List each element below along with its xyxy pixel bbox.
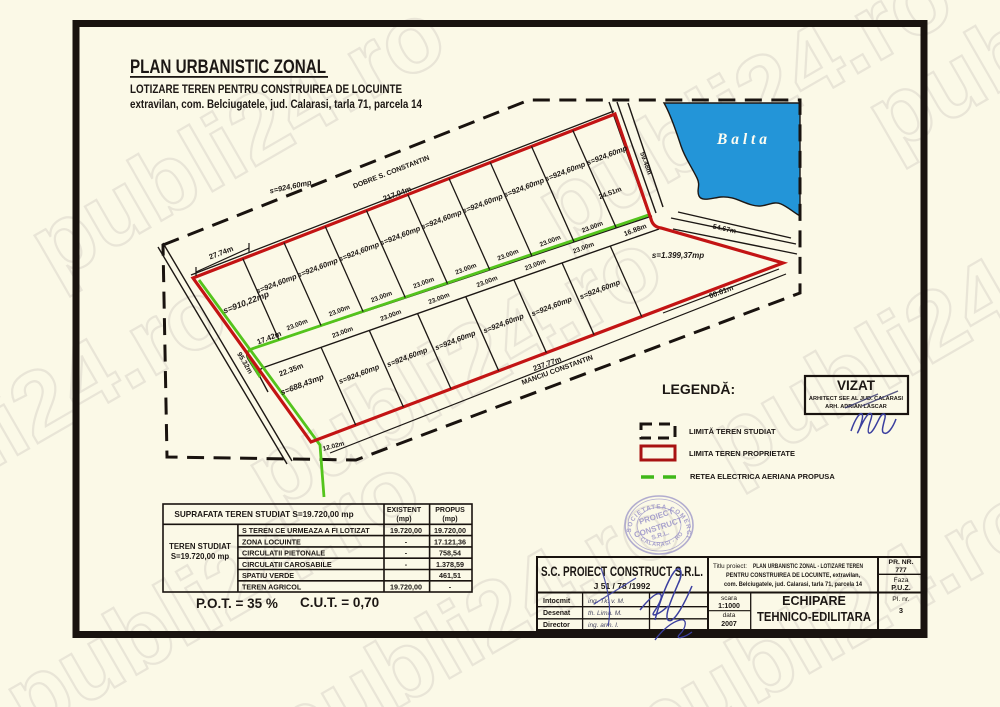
- svg-text:S=19.720,00 mp: S=19.720,00 mp: [171, 552, 230, 561]
- svg-text:(mp): (mp): [442, 516, 457, 523]
- svg-text:CIRCULATII CAROSABILE: CIRCULATII CAROSABILE: [242, 560, 332, 569]
- svg-text:3: 3: [899, 606, 903, 615]
- svg-text:19.720,00: 19.720,00: [390, 583, 422, 592]
- svg-text:EXISTENT: EXISTENT: [387, 507, 422, 514]
- svg-text:CIRCULATII PIETONALE: CIRCULATII PIETONALE: [242, 549, 325, 558]
- svg-text:758,54: 758,54: [439, 549, 461, 558]
- svg-text:VIZAT: VIZAT: [837, 378, 876, 393]
- svg-text:P.O.T. = 35 %: P.O.T. = 35 %: [196, 596, 278, 611]
- svg-text:PLAN URBANISTIC ZONAL: PLAN URBANISTIC ZONAL: [130, 56, 326, 78]
- svg-text:PLAN URBANISTIC ZONAL - LOTIZA: PLAN URBANISTIC ZONAL - LOTIZARE TEREN: [753, 563, 863, 570]
- svg-text:461,51: 461,51: [439, 571, 461, 580]
- svg-text:Director: Director: [543, 622, 570, 629]
- svg-text:S.C. PROIECT CONSTRUCT S.R.L.: S.C. PROIECT CONSTRUCT S.R.L.: [541, 564, 703, 579]
- svg-text:Titlu proiect:: Titlu proiect:: [713, 563, 747, 570]
- svg-text:LIMITĂ TEREN STUDIAT: LIMITĂ TEREN STUDIAT: [689, 427, 776, 436]
- svg-text:B a l t a: B a l t a: [716, 131, 767, 148]
- svg-text:ARH. ADRIAN LASCAR: ARH. ADRIAN LASCAR: [825, 404, 887, 410]
- svg-text:Intocmit: Intocmit: [543, 598, 571, 605]
- svg-text:ECHIPARE: ECHIPARE: [782, 594, 846, 608]
- svg-text:extravilan, com. Belciugatele,: extravilan, com. Belciugatele, jud. Cala…: [130, 97, 422, 111]
- svg-text:ARHITECT SEF AL JUD. CALARASI: ARHITECT SEF AL JUD. CALARASI: [809, 396, 904, 402]
- svg-text:17.121,36: 17.121,36: [434, 537, 466, 546]
- svg-text:1:1000: 1:1000: [718, 603, 740, 610]
- svg-text:PR. NR.: PR. NR.: [889, 559, 914, 566]
- svg-text:PROPUS: PROPUS: [435, 507, 465, 514]
- svg-text:C.U.T. = 0,70: C.U.T. = 0,70: [300, 595, 379, 610]
- svg-text:TEHNICO-EDILITARA: TEHNICO-EDILITARA: [757, 610, 871, 624]
- svg-text:P.U.Z.: P.U.Z.: [891, 583, 910, 592]
- svg-text:TEREN AGRICOL: TEREN AGRICOL: [242, 583, 302, 592]
- svg-text:RETEA ELECTRICA AERIANA PROPUS: RETEA ELECTRICA AERIANA PROPUSA: [690, 472, 835, 481]
- svg-text:LIMITA TEREN PROPRIETATE: LIMITA TEREN PROPRIETATE: [689, 449, 795, 458]
- svg-text:com. Belciugatele, jud. Calara: com. Belciugatele, jud. Calarasi, tarla …: [724, 582, 863, 588]
- svg-text:SPATIU VERDE: SPATIU VERDE: [242, 571, 294, 580]
- svg-text:19.720,00: 19.720,00: [390, 526, 422, 535]
- svg-text:s=1.399,37mp: s=1.399,37mp: [652, 251, 704, 260]
- svg-text:data: data: [723, 612, 736, 619]
- svg-text:S TEREN CE URMEAZA A FI LOTIZA: S TEREN CE URMEAZA A FI LOTIZAT: [242, 526, 370, 535]
- svg-text:2007: 2007: [721, 621, 737, 628]
- svg-text:scara: scara: [721, 595, 737, 602]
- svg-text:th. Lima. M.: th. Lima. M.: [588, 610, 622, 617]
- svg-text:TEREN STUDIAT: TEREN STUDIAT: [169, 542, 231, 551]
- svg-text:LOTIZARE TEREN PENTRU CONSTRUI: LOTIZARE TEREN PENTRU CONSTRUIREA DE LOC…: [130, 82, 402, 96]
- svg-text:PENTRU CONSTRUIREA DE LOCUINTE: PENTRU CONSTRUIREA DE LOCUINTE, extravil…: [726, 572, 860, 579]
- svg-text:777: 777: [895, 567, 907, 574]
- svg-text:Pl. nr.: Pl. nr.: [892, 596, 909, 603]
- svg-text:ing. Tk. v. M.: ing. Tk. v. M.: [588, 598, 625, 605]
- svg-text:ZONA LOCUINTE: ZONA LOCUINTE: [242, 537, 301, 546]
- svg-text:SUPRAFATA TEREN STUDIAT S=19.: SUPRAFATA TEREN STUDIAT S=19.720,00 mp: [174, 510, 353, 519]
- svg-text:(mp): (mp): [396, 516, 411, 523]
- svg-text:Desenat: Desenat: [543, 610, 571, 617]
- svg-text:19.720,00: 19.720,00: [434, 526, 466, 535]
- svg-text:1.378,59: 1.378,59: [436, 560, 464, 569]
- svg-text:ing. arm. I.: ing. arm. I.: [588, 622, 619, 629]
- svg-text:LEGENDĂ:: LEGENDĂ:: [662, 381, 735, 397]
